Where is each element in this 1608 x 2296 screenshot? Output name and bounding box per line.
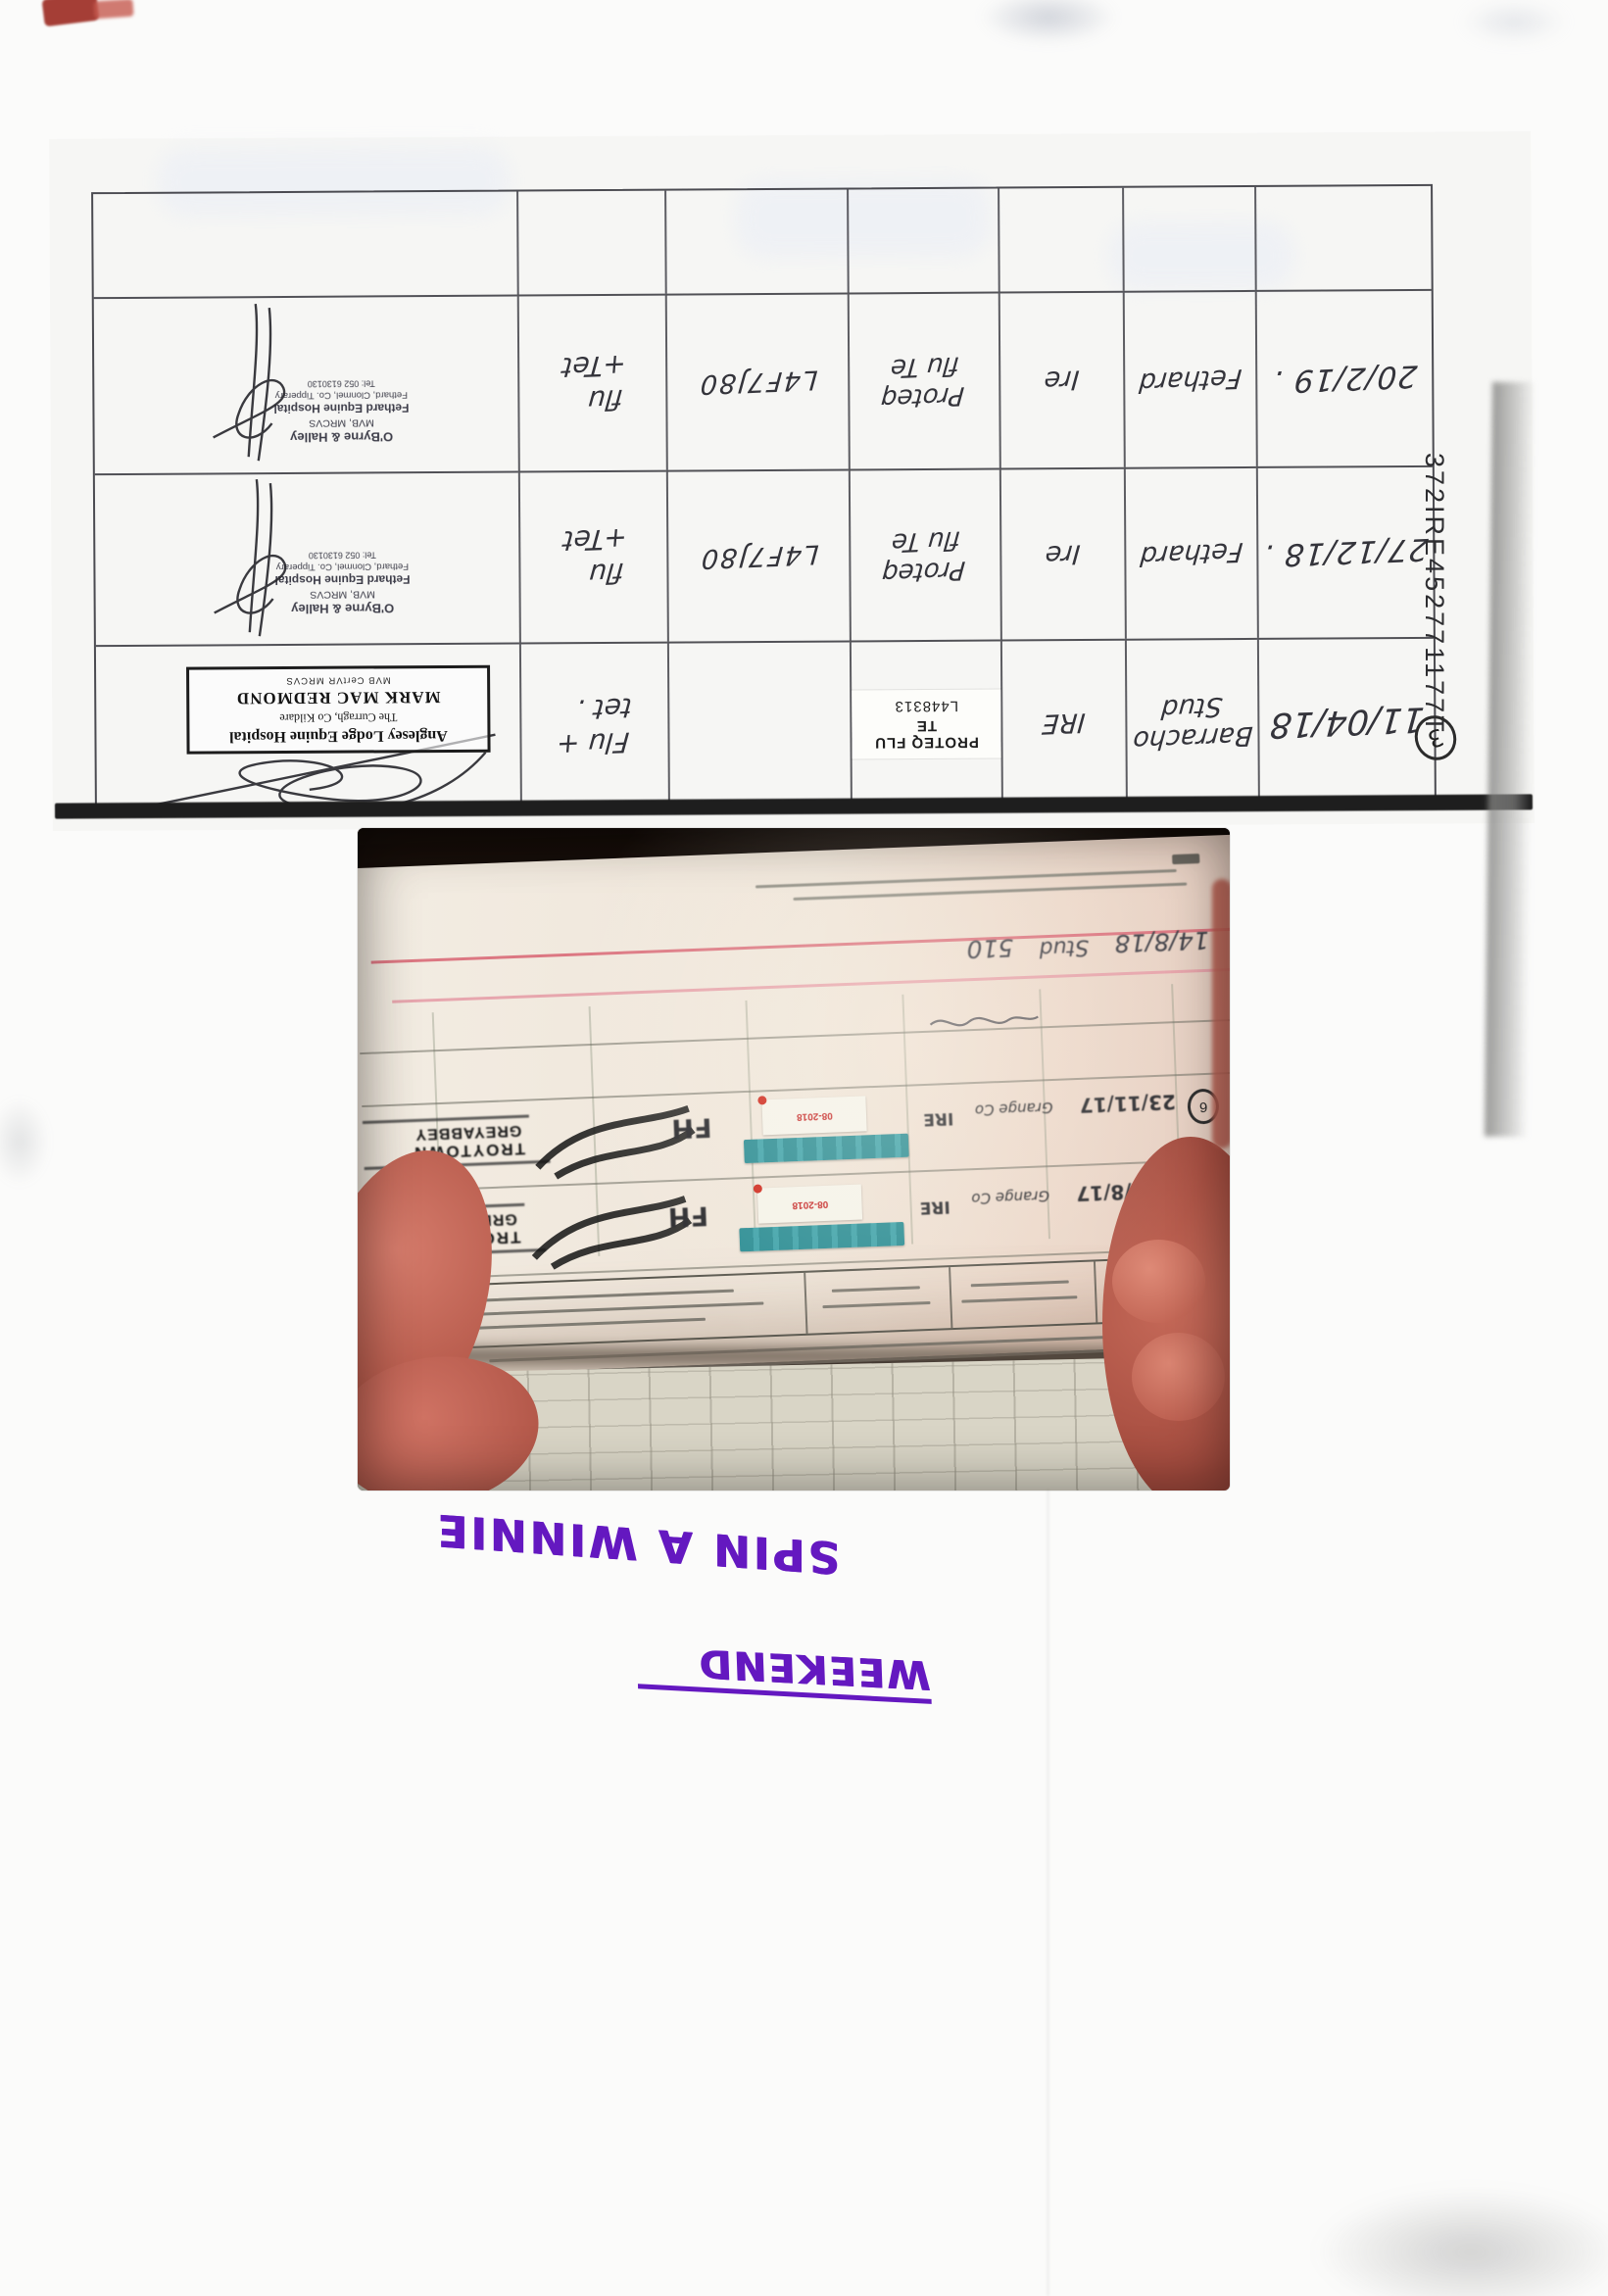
cell-date: 27/12/18 . — [1256, 465, 1434, 638]
clinic-address: Fethard, Clonmel, Co. Tipperary — [263, 389, 419, 401]
vaccine-name: PROTEQ FLU TE — [861, 717, 991, 752]
clinic-stamp: Anglesey Lodge Equine Hospital The Curra… — [186, 665, 491, 755]
vet-qualifications: MVB, MRCVS — [265, 588, 421, 601]
clinic-name2: Fethard Equine Hospital — [264, 572, 420, 587]
vaccine-handwriting: Proteqflu Te — [881, 522, 969, 587]
cell-date: 11/04/18 — [1257, 637, 1435, 805]
red-dot — [757, 1096, 766, 1104]
red-ink-smudge — [93, 0, 133, 19]
teal-sticker — [739, 1222, 904, 1251]
cell-disease: flu+Tet — [518, 470, 667, 643]
place-handwriting: Stud — [1161, 691, 1224, 724]
country-handwriting: IRE — [1042, 708, 1087, 740]
scan-corner-shadow — [1314, 2188, 1608, 2296]
clinic-stamp: O'Byrne & Halley MVB, MRCVS Fethard Equi… — [264, 550, 420, 616]
clinic-stamp: O'Byrne & Halley MVB, MRCVS Fethard Equi… — [263, 378, 419, 445]
vaccine-handwriting: Proteqflu Te — [880, 349, 968, 414]
cell-date: 20/2/19 . — [1255, 289, 1433, 466]
disease-handwriting: Flu +tet . — [556, 690, 634, 761]
cell-empty — [1122, 187, 1255, 291]
country-handwriting: Ire — [1044, 365, 1081, 397]
printed-mark — [1172, 854, 1199, 864]
knuckle — [1112, 1240, 1205, 1323]
paper-crease — [1047, 1490, 1049, 2296]
cell-place: Barracho Stud — [1125, 638, 1258, 806]
cell-batch: L4F7J80 — [666, 468, 850, 641]
knuckle — [1132, 1333, 1225, 1421]
cell-vaccine: Proteqflu Te — [848, 292, 999, 469]
horse-name-annotation: SPIN A WINNIE — [411, 1502, 841, 1585]
clinic-address: Fethard, Clonmel, Co. Tipperary — [264, 561, 420, 572]
scan-smudge — [980, 0, 1117, 44]
cell-disease: Flu +tet . — [519, 642, 668, 809]
scan-smudge — [0, 1098, 49, 1186]
date-handwriting: 11/04/18 — [1268, 699, 1425, 745]
disease-handwriting: flu+Tet — [558, 348, 627, 419]
cell-place: Fethard — [1123, 290, 1256, 467]
red-dot — [754, 1184, 762, 1193]
cell-batch — [667, 640, 851, 807]
place-text: Grange Co — [975, 1099, 1053, 1119]
place-text: Grange Co — [971, 1187, 1049, 1207]
handwritten-word: Stud — [1039, 934, 1089, 960]
vet-initials: FH — [667, 1200, 708, 1233]
vet-qualifications: MVB, MRCVS — [263, 416, 419, 429]
clinic-name: Anglesey Lodge Equine Hospital — [193, 726, 483, 746]
scanned-document-page: 11/04/18 Barracho Stud IRE PROTEQ FLU TE… — [0, 0, 1608, 2296]
finger-edge — [1212, 879, 1230, 1148]
vaccination-table-rotated-180: 11/04/18 Barracho Stud IRE PROTEQ FLU TE… — [91, 184, 1437, 813]
cell-empty — [998, 188, 1123, 292]
cell-empty — [847, 189, 999, 293]
scan-shadow-streak — [1485, 382, 1535, 1137]
sticker-date: 08-2018 — [796, 1109, 832, 1121]
cell-place: Fethard — [1124, 466, 1257, 639]
cell-country: Ire — [999, 467, 1125, 640]
place-handwriting: Barracho — [1132, 720, 1254, 756]
event-label-annotation: WEEKEND — [636, 1637, 931, 1704]
scan-smudge — [1460, 0, 1568, 44]
handwritten-date: 14/8/18 — [1114, 926, 1209, 958]
handwritten-number: 510 — [966, 933, 1014, 963]
country-text: IRE — [923, 1108, 954, 1129]
red-ink-smudge — [42, 0, 100, 26]
cell-country: Ire — [999, 291, 1124, 468]
date-handwriting: 20/2/19 . — [1271, 358, 1419, 399]
clinic-name: O'Byrne & Halley — [265, 601, 421, 616]
cell-empty — [664, 189, 848, 293]
batch-handwriting: L4F7J80 — [699, 538, 820, 573]
clinic-phone: Tel: 052 6130130 — [264, 550, 420, 561]
cell-country: IRE — [1000, 639, 1126, 806]
printed-text-line — [793, 883, 1187, 901]
cell-vaccine: Proteqflu Te — [849, 468, 1000, 641]
cell-vaccine: PROTEQ FLU TE L448313 — [850, 640, 1001, 807]
clinic-address: The Curragh, Co Kildare — [193, 709, 483, 726]
cell-empty — [516, 191, 665, 295]
teal-sticker — [744, 1134, 909, 1163]
pink-rule-line — [392, 968, 1230, 1003]
vaccine-batch: L448313 — [861, 698, 991, 715]
vaccine-sticker: PROTEQ FLU TE L448313 — [852, 690, 1000, 759]
cell-stamp: O'Byrne & Halley MVB, MRCVS Fethard Equi… — [95, 471, 519, 646]
country-text: IRE — [919, 1197, 950, 1217]
vet-name: MARK MAC REDMOND — [193, 687, 483, 708]
batch-handwriting: L4F7J80 — [697, 365, 818, 400]
clinic-phone: Tel: 052 6130130 — [263, 378, 419, 389]
disease-handwriting: flu+Tet — [559, 521, 628, 593]
cell-empty — [1254, 186, 1432, 290]
passport-page: 510 Stud 14/8/18 GREYABBEY TROYTOWN — [358, 833, 1230, 1378]
passport-number-vertical: 372IRE452771177T — [1419, 453, 1449, 735]
passport-photo: 510 Stud 14/8/18 GREYABBEY TROYTOWN — [358, 828, 1230, 1490]
cell-batch: L4F7J80 — [665, 292, 849, 469]
date-text: 23/11/17 — [1079, 1090, 1176, 1117]
country-handwriting: Ire — [1045, 538, 1082, 570]
vet-initials: FH — [671, 1111, 712, 1144]
cell-disease: flu+Tet — [517, 294, 666, 471]
clinic-name2: Fethard Equine Hospital — [263, 401, 419, 415]
date-handwriting: 27/12/18 . — [1261, 531, 1430, 573]
vaccine-label-sticker: 08-2018 — [761, 1096, 866, 1135]
handwriting-squiggle — [925, 1006, 1044, 1037]
vaccine-label-sticker: 08-2018 — [757, 1185, 862, 1224]
row-separator — [360, 1019, 1230, 1055]
place-handwriting: Fethard — [1138, 363, 1243, 397]
clinic-name: O'Byrne & Halley — [264, 429, 420, 445]
vet-qualifications: MVB CertVR MRCVS — [193, 674, 483, 687]
photo-handwriting-row: 510 Stud 14/8/18 — [909, 926, 1209, 966]
cell-empty — [93, 192, 517, 298]
cell-stamp: O'Byrne & Halley MVB, MRCVS Fethard Equi… — [94, 295, 518, 474]
sticker-date: 08-2018 — [792, 1197, 828, 1209]
place-handwriting: Fethard — [1139, 536, 1243, 570]
cell-stamp: Anglesey Lodge Equine Hospital The Curra… — [96, 643, 520, 812]
